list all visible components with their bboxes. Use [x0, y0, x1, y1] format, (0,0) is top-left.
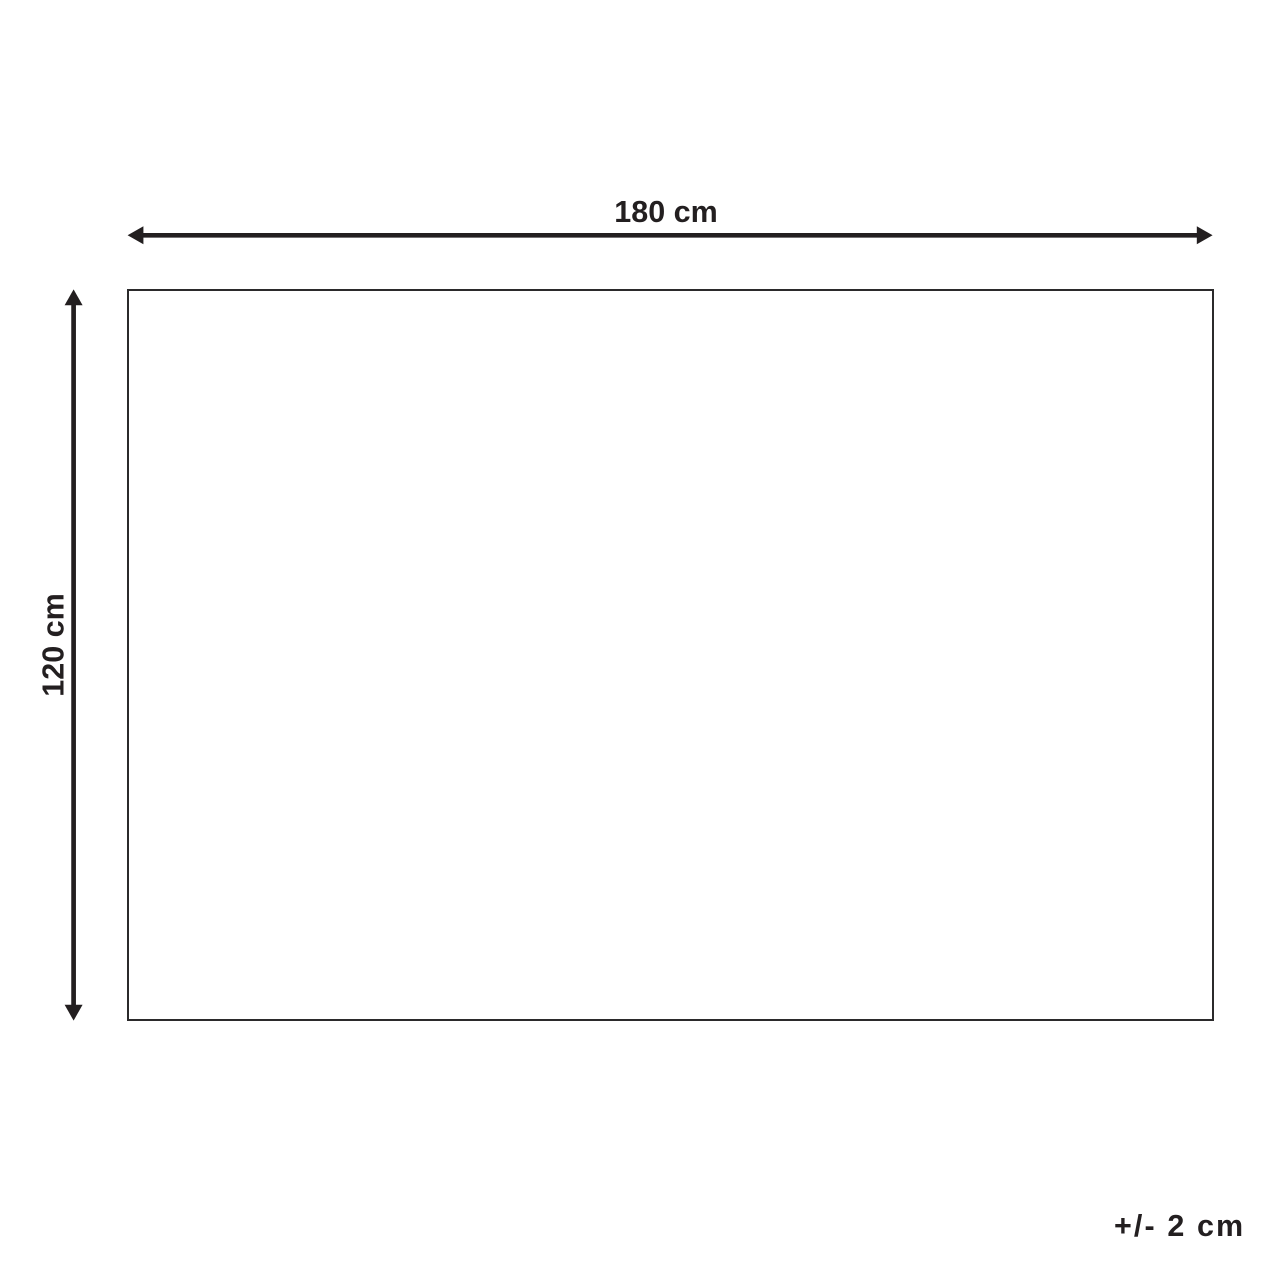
svg-text:180 cm: 180 cm — [614, 195, 717, 229]
svg-text:+/- 2 cm: +/- 2 cm — [1114, 1209, 1245, 1243]
svg-text:120 cm: 120 cm — [37, 593, 71, 696]
